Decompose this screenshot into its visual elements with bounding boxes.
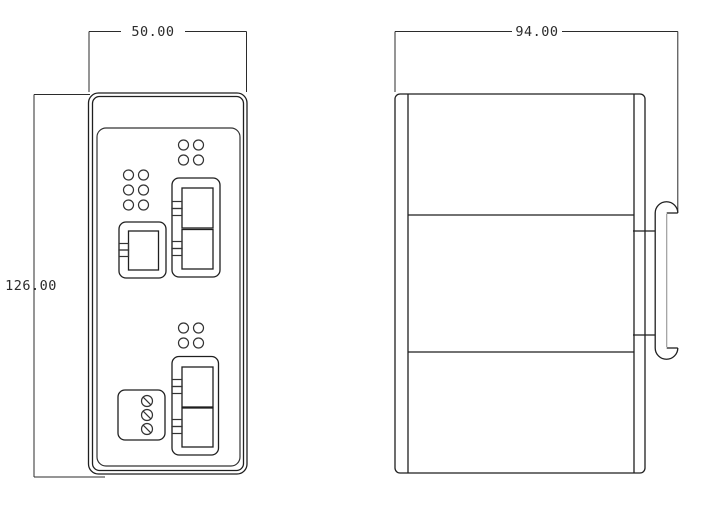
drawing-canvas: 50.00 126.00 94.00	[0, 0, 703, 509]
power-terminal-block	[118, 390, 165, 440]
led-cluster-bottom	[179, 323, 204, 348]
dimension-front-height: 126.00	[5, 95, 105, 478]
rj45-latch-tabs	[119, 244, 129, 257]
dimension-label-front-width: 50.00	[131, 24, 174, 40]
dimension-label-front-height: 126.00	[5, 278, 57, 294]
led-cluster-left	[124, 170, 149, 210]
front-body-outer-outline	[89, 93, 248, 474]
front-body-inner-outline	[93, 97, 244, 471]
fiber-connector	[182, 230, 213, 270]
din-rail-clip	[633, 202, 678, 360]
fiber-port-upper	[172, 178, 220, 277]
fiber-connector	[182, 408, 213, 447]
fiber-connector	[182, 367, 213, 407]
front-view	[89, 93, 248, 474]
clip-bottom-cap	[655, 348, 678, 359]
dimension-label-side-depth: 94.00	[515, 24, 558, 40]
fiber-connector	[182, 188, 213, 228]
screw-terminals	[142, 396, 153, 435]
side-body-outline	[395, 94, 645, 473]
fiber-latch-tabs	[172, 380, 182, 434]
led-cluster-top-right	[179, 140, 204, 165]
technical-drawing: 50.00 126.00 94.00	[0, 0, 703, 509]
fiber-port-lower	[172, 357, 219, 456]
side-view	[395, 94, 678, 473]
dimension-side-depth: 94.00	[395, 24, 678, 212]
fiber-latch-tabs	[172, 202, 182, 256]
dimension-front-width: 50.00	[89, 24, 247, 92]
rj45-port	[119, 222, 166, 278]
